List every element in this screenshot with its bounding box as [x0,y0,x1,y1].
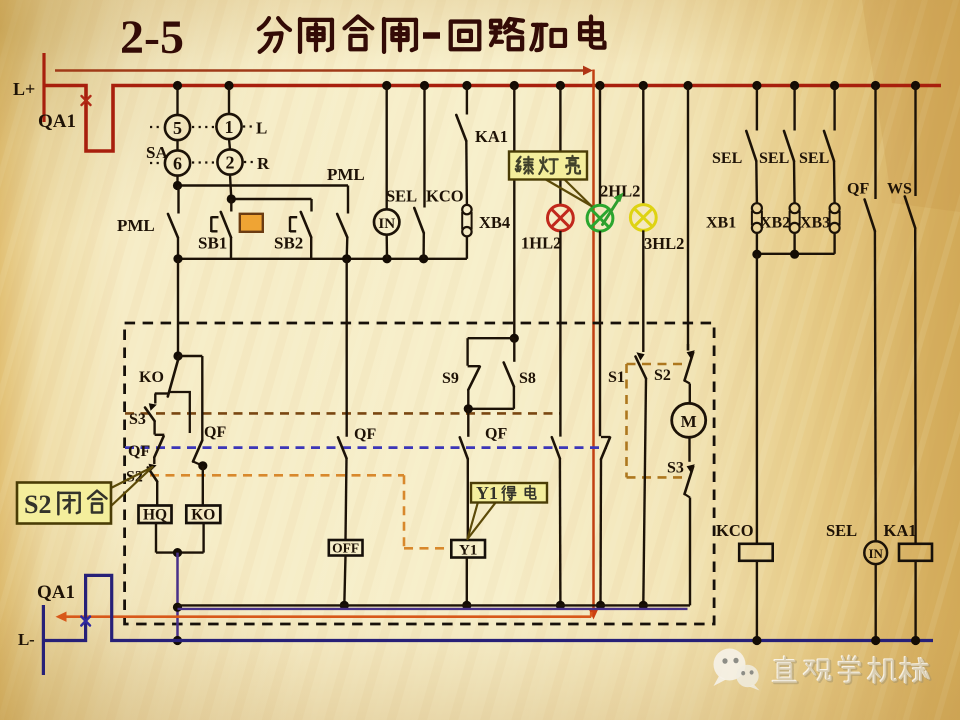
svg-text:IN: IN [868,546,883,561]
svg-text:WS: WS [887,181,912,198]
svg-text:R: R [257,154,270,173]
svg-text:6: 6 [173,154,182,174]
svg-text:QA1: QA1 [37,582,75,603]
svg-text:SA: SA [146,143,168,162]
svg-text:S9: S9 [442,370,459,387]
svg-text:SEL: SEL [826,521,857,540]
svg-text:KA1: KA1 [884,521,917,540]
svg-text:Y1: Y1 [476,483,498,503]
svg-text:QF: QF [128,443,150,460]
svg-text:S2: S2 [654,367,671,384]
svg-text:HQ: HQ [143,507,167,524]
svg-text:SB1: SB1 [198,234,227,253]
svg-text:L: L [18,630,29,649]
svg-text:1: 1 [225,117,234,137]
svg-text:XB3: XB3 [800,215,830,232]
svg-text:L: L [256,119,267,138]
svg-text:S2: S2 [24,490,51,519]
svg-text:KCO: KCO [426,187,464,206]
svg-text:2-5: 2-5 [120,11,184,64]
svg-text:XB1: XB1 [706,215,736,232]
svg-text:PML: PML [327,165,365,184]
svg-text:S1: S1 [608,369,625,386]
svg-text:QA1: QA1 [38,111,76,132]
svg-text:KO: KO [139,369,164,386]
svg-text:XB4: XB4 [479,213,510,232]
svg-text:KCO: KCO [716,521,754,540]
svg-text:L+: L+ [13,79,35,99]
svg-text:XB2: XB2 [760,215,790,232]
svg-text:SEL: SEL [712,150,742,167]
svg-text:1HL2: 1HL2 [521,234,561,253]
svg-text:S3: S3 [667,460,684,477]
svg-text:SB2: SB2 [274,234,303,253]
svg-text:-: - [29,630,35,649]
svg-text:QF: QF [204,424,226,441]
svg-text:2: 2 [226,153,235,173]
svg-text:PML: PML [117,216,155,235]
svg-text:SEL: SEL [799,150,829,167]
svg-text:M: M [681,412,697,431]
svg-text:OFF: OFF [332,541,359,556]
svg-text:KO: KO [191,507,215,524]
svg-text:SEL: SEL [759,150,789,167]
svg-text:5: 5 [173,118,182,138]
svg-text:S3: S3 [129,411,146,428]
svg-text:QF: QF [354,426,376,443]
svg-text:QF: QF [847,181,869,198]
svg-text:SEL: SEL [386,187,417,206]
svg-text:S8: S8 [519,370,536,387]
svg-text:3HL2: 3HL2 [644,234,684,253]
svg-text:Y1: Y1 [459,543,477,559]
svg-text:KA1: KA1 [475,127,508,146]
svg-text:QF: QF [485,426,507,443]
svg-text:IN: IN [378,216,395,232]
